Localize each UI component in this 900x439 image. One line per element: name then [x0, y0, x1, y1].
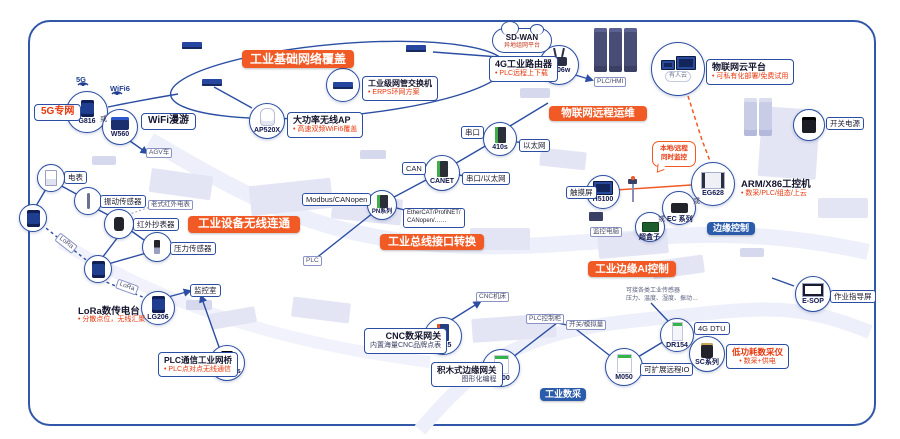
ir-reader-label: 红外抄表器: [133, 218, 179, 231]
usr-cloud-chip: 有人云: [665, 71, 691, 81]
node-wifi-module-w560: W560: [102, 109, 138, 145]
node-remote-io-m050: M050: [605, 348, 643, 386]
node-ir-meter-reader: [104, 209, 134, 239]
industrial-iot-diagram: 5G专网 5G WiFi6 G816 或 W560 WiFi漫游 AGV车 电表…: [0, 0, 900, 439]
switch-icon: [333, 82, 353, 89]
desk-monitor: [589, 212, 603, 221]
cctv-camera-icon: [632, 184, 634, 202]
touchscreen-label: 触摸屏: [566, 186, 597, 199]
psu-icon: [802, 117, 816, 133]
node-vibration-sensor: [74, 187, 102, 215]
wifi-module-icon: [111, 117, 129, 130]
wifi-roaming-label: WiFi漫游: [141, 113, 196, 130]
4g-dtu-label: 4G DTU: [694, 322, 730, 335]
5g-private-network-label: 5G专网: [34, 104, 81, 121]
industrial-pc-icon: [701, 172, 725, 189]
esop-screen-icon: [802, 283, 824, 297]
sdwan-cloud: SD-WAN 异地组网平台: [492, 28, 552, 53]
node-managed-switch: [326, 68, 360, 102]
cnc-machine-label: CNC机床: [476, 292, 509, 302]
access-point-icon: [260, 108, 275, 126]
banner-remote-ops: 物联网远程运维: [549, 106, 647, 121]
or-label-1: 或: [100, 114, 107, 124]
node-lowpower-logger-sc: SC系列: [689, 336, 725, 372]
edge-computer-icon: [671, 203, 688, 213]
old-ir-meter-label: 老式红外电表: [148, 200, 193, 210]
can-converter-icon: [437, 161, 448, 177]
cloud-platform-callout: 物联网云平台 • 可私有化部署/免费试用: [706, 59, 794, 85]
node-lora-dtu-a: [19, 204, 47, 232]
cnc-gateway-callout: CNC数采网关 内置海量CNC品牌点表: [364, 328, 447, 354]
vibration-sensor-label: 振动传感器: [100, 195, 146, 208]
ring-node-switch-2: [202, 79, 222, 86]
lora-station-icon: [152, 296, 165, 313]
wifi6-signal-icon: WiFi6: [110, 85, 130, 93]
block-gateway-callout: 积木式边缘网关 图形化编程: [431, 362, 503, 387]
power-meter-icon: [45, 170, 57, 186]
expandable-io-label: 可扩展远程IO: [640, 363, 693, 376]
ethernet-label: 以太网: [519, 139, 550, 152]
lora-station-bullet: • 分散点位，无线汇聚: [78, 314, 145, 324]
banner-network-coverage: 工业基础网络覆盖: [242, 50, 354, 68]
plc-label: PLC: [303, 256, 322, 266]
node-serial-server-410s: 410s: [483, 122, 517, 156]
desk-monitor-label: 监控电脑: [590, 227, 622, 237]
banner-edge-ai: 工业边缘AI控制: [588, 261, 676, 277]
pressure-sensor-icon: [154, 240, 160, 254]
banner-bus-conversion: 工业总线接口转换: [380, 234, 484, 250]
sensor-note: 可接各类工业传感器压力、温度、湿度、振动…: [626, 287, 698, 304]
node-esop-screen: E-SOP: [795, 276, 831, 312]
or-label-2: 或: [693, 196, 700, 206]
protocol-list-label: EtherCAT/ProfiNET/CANopen/……: [403, 208, 465, 228]
io-signals-label: 开关/模拟量: [566, 320, 606, 330]
node-power-meter: [37, 164, 65, 192]
switch-callout: 工业级网管交换机 • ERPS环网方案: [362, 76, 438, 101]
router-callout: 4G工业路由器 • PLC远程上下载: [489, 56, 558, 82]
monitor-room-label: 监控室: [190, 284, 221, 297]
node-lora-dtu-b: [84, 255, 112, 283]
lora-dtu-icon: [92, 261, 105, 278]
dashboard-screens-icon: [661, 56, 696, 70]
ap-callout: 大功率无线AP • 高速双频WiFi6覆盖: [287, 112, 363, 138]
lowpower-logger-callout: 低功耗数采仪 • 数采+供电: [726, 344, 789, 369]
edge-box-icon: [642, 222, 659, 232]
vibration-sensor-icon: [87, 193, 90, 209]
lora-dtu-icon: [27, 210, 40, 227]
serial-ethernet-label: 串口/以太网: [462, 172, 510, 185]
ec-series-label: EC 系列: [667, 216, 693, 223]
node-wireless-ap: AP520X: [249, 103, 285, 139]
plc-bridge-callout: PLC通信工业网桥 • PLC点对点无线通信: [158, 352, 238, 377]
banner-wireless-connect: 工业设备无线连通: [188, 216, 300, 233]
ipc-bullet: • 数采/PLC/组态/上云: [741, 188, 807, 198]
agv-label: AGV车: [146, 148, 172, 158]
modbus-canopen-label: Modbus/CANopen: [302, 193, 371, 206]
node-switching-psu: [793, 109, 825, 141]
serial-server-icon: [495, 127, 506, 143]
plc-hmi-label: PLC/HMI: [594, 77, 626, 87]
remote-io-icon: [617, 354, 632, 373]
monitor-bubble: 本地/远程同时监控: [652, 141, 696, 167]
plc-cabinet-label: PLC控制柜: [526, 314, 564, 324]
node-canet: CANET: [424, 155, 460, 191]
5g-signal-icon: 5G: [76, 76, 86, 84]
node-pn-gateway: PN系列: [367, 190, 397, 220]
4g-dtu-icon: [672, 322, 683, 341]
node-lora-station-lg206: LG206: [141, 291, 175, 325]
power-meter-label: 电表: [64, 171, 87, 184]
5g-router-icon: [81, 100, 94, 117]
ring-node-switch-3: [406, 45, 426, 52]
fieldbus-gateway-icon: [377, 195, 388, 208]
banner-edge-control: 边缘控制: [707, 222, 755, 235]
work-instruction-label: 作业指导屏: [830, 290, 876, 303]
edge-box-label: 超盒子: [639, 234, 660, 241]
serial-label: 串口: [461, 126, 484, 139]
ir-reader-icon: [114, 217, 124, 231]
node-pressure-sensor: [142, 232, 172, 262]
banner-data-acquisition: 工业数采: [540, 388, 586, 401]
can-label: CAN: [402, 162, 426, 175]
or-label-3: 或: [658, 214, 665, 224]
pressure-sensor-label: 压力传感器: [170, 242, 216, 255]
node-cloud-platform: 有人云: [651, 42, 705, 96]
lowpower-logger-icon: [701, 343, 713, 358]
psu-label: 开关电源: [826, 117, 864, 130]
node-4g-dtu-dr154: DR154: [660, 318, 694, 352]
ring-node-switch-1: [182, 42, 202, 49]
